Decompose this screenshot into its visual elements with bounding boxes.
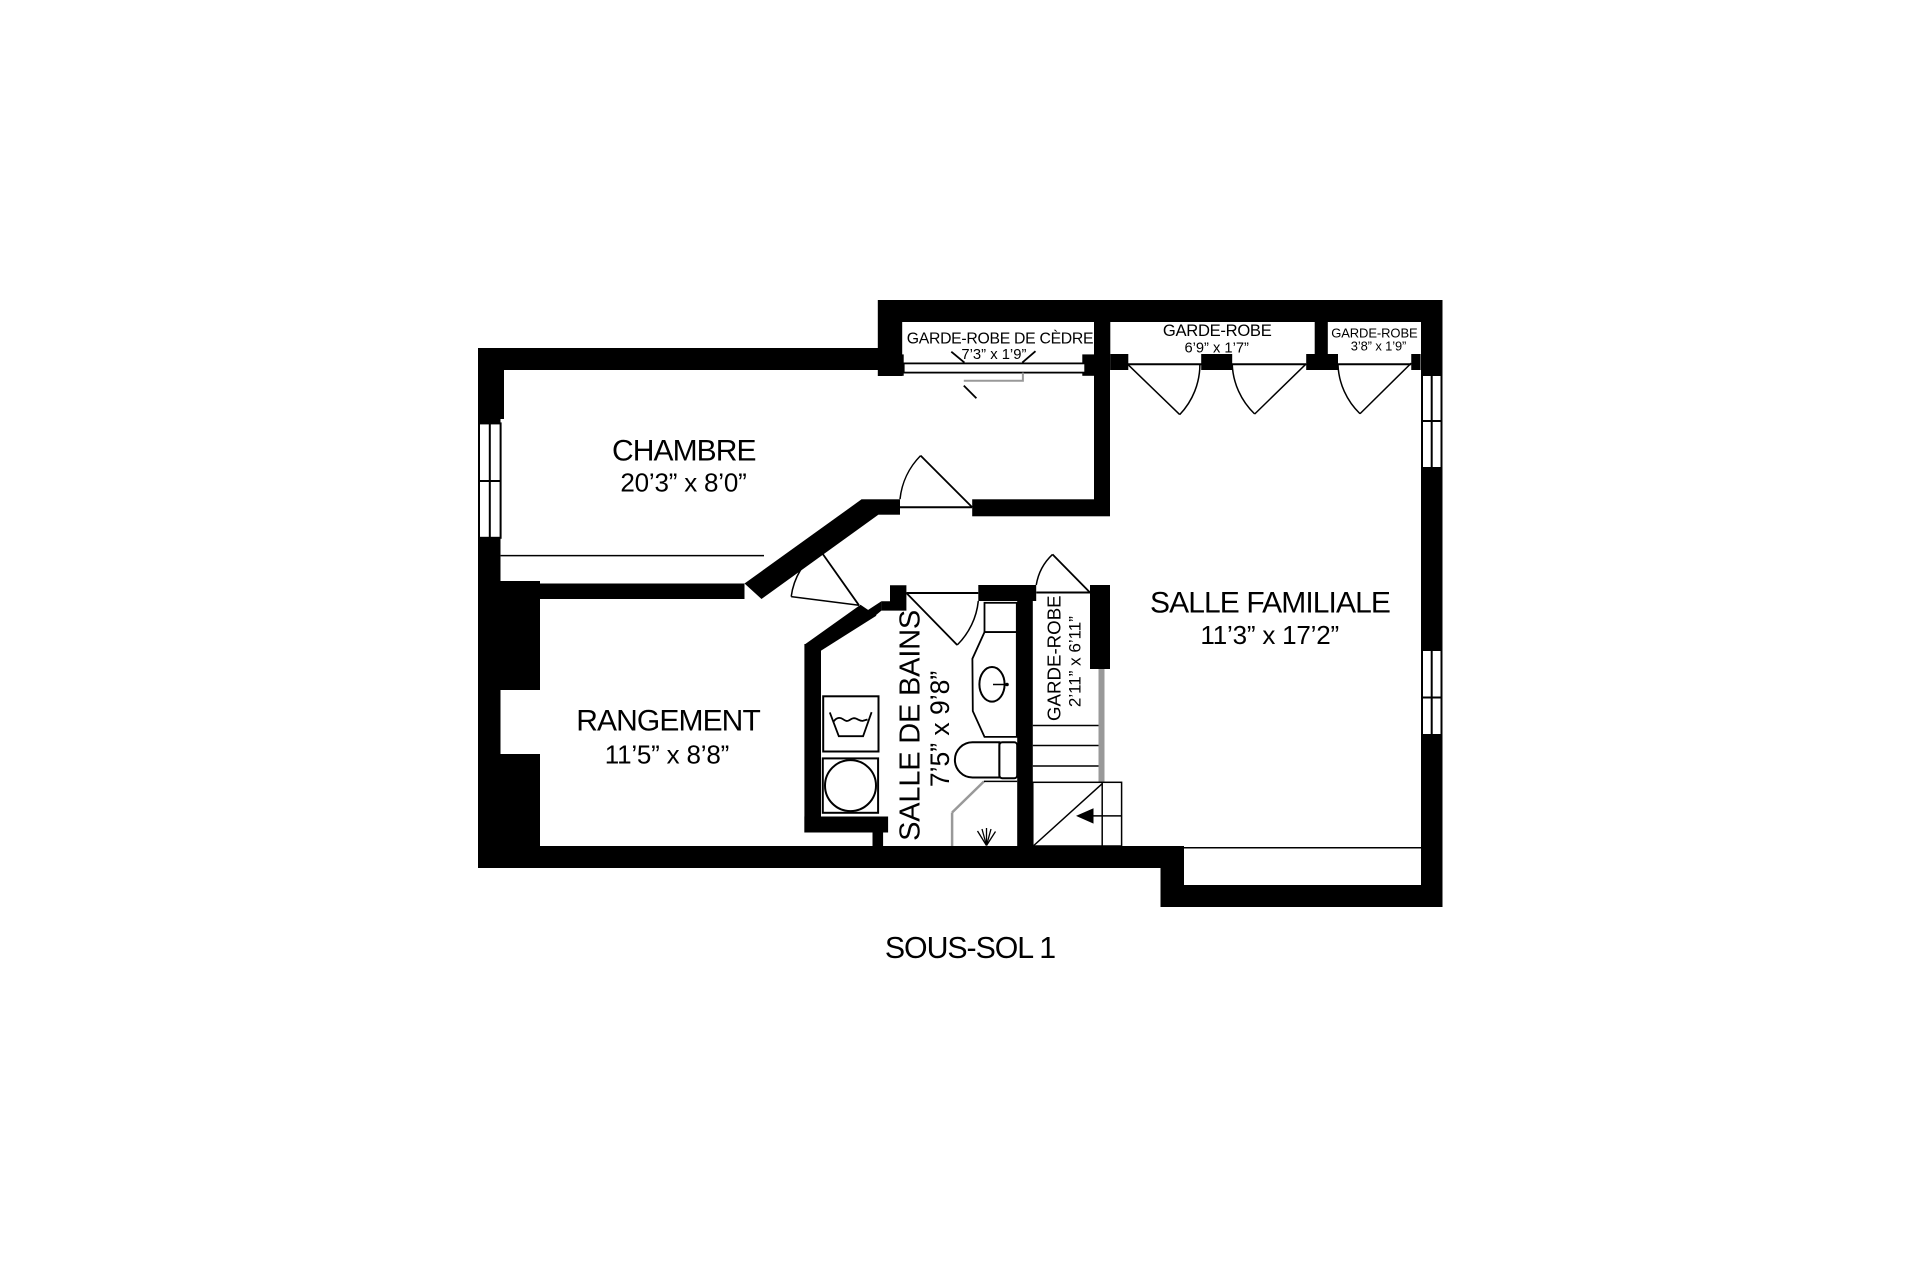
svg-text:CHAMBRE: CHAMBRE [612,435,756,468]
svg-text:20’3” x 8’0”: 20’3” x 8’0” [620,467,746,497]
svg-text:SALLE DE BAINS: SALLE DE BAINS [895,610,927,841]
svg-text:2’11” x 6’11”: 2’11” x 6’11” [1066,616,1085,707]
svg-text:7’3” x 1’9”: 7’3” x 1’9” [961,347,1026,363]
svg-text:11’3” x 17’2”: 11’3” x 17’2” [1200,620,1339,650]
svg-text:GARDE-ROBE: GARDE-ROBE [1044,595,1065,721]
svg-text:3’8” x 1’9”: 3’8” x 1’9” [1351,339,1407,354]
svg-text:GARDE-ROBE DE CÈDRE: GARDE-ROBE DE CÈDRE [907,328,1094,347]
svg-text:RANGEMENT: RANGEMENT [576,705,760,738]
svg-text:SALLE FAMILIALE: SALLE FAMILIALE [1150,587,1390,620]
svg-text:6’9” x 1’7”: 6’9” x 1’7” [1184,340,1249,356]
svg-text:7’5” x 9’8”: 7’5” x 9’8” [925,671,955,787]
svg-text:SOUS-SOL 1: SOUS-SOL 1 [885,932,1055,965]
svg-text:GARDE-ROBE: GARDE-ROBE [1163,321,1272,340]
svg-text:11’5” x 8’8”: 11’5” x 8’8” [605,739,729,769]
